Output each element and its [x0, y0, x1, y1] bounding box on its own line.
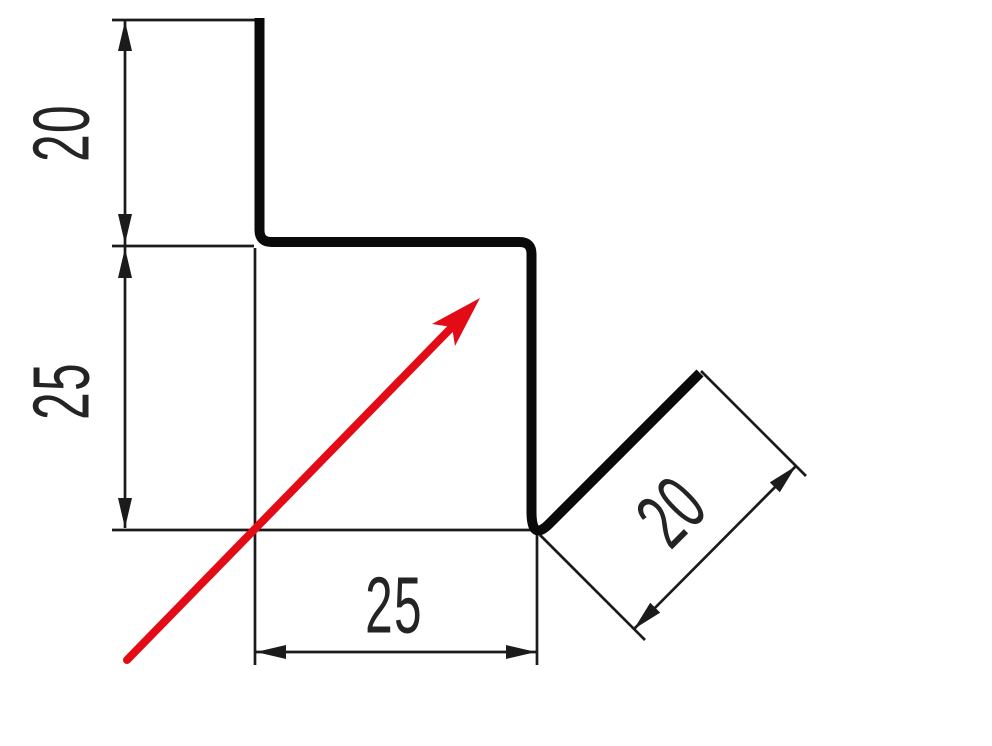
arrowhead-down-icon: [118, 214, 132, 244]
arrowhead-up-icon: [118, 21, 132, 51]
dimension-label-top-left: 20: [18, 104, 107, 162]
arrowhead-left-icon: [256, 645, 286, 659]
dimension-label-left: 25: [18, 362, 107, 420]
arrowhead-right-icon: [506, 645, 536, 659]
dimension-flange-diagonal: 20: [620, 460, 796, 629]
dimension-left-vertical: 20 25: [18, 21, 132, 528]
dimension-bottom-horizontal: 25: [256, 562, 536, 659]
arrowhead-up-icon: [118, 248, 132, 278]
dimension-label-flange: 20: [620, 460, 724, 564]
extension-line-flange-upper: [701, 371, 806, 476]
dimension-label-bottom: 25: [365, 562, 423, 651]
drawing-svg: 20 25 25 20: [0, 0, 992, 746]
direction-arrow-icon: [127, 298, 480, 660]
arrowhead-down-icon: [118, 498, 132, 528]
extension-line-flange-lower: [540, 535, 645, 640]
technical-drawing: 20 25 25 20: [0, 0, 992, 746]
